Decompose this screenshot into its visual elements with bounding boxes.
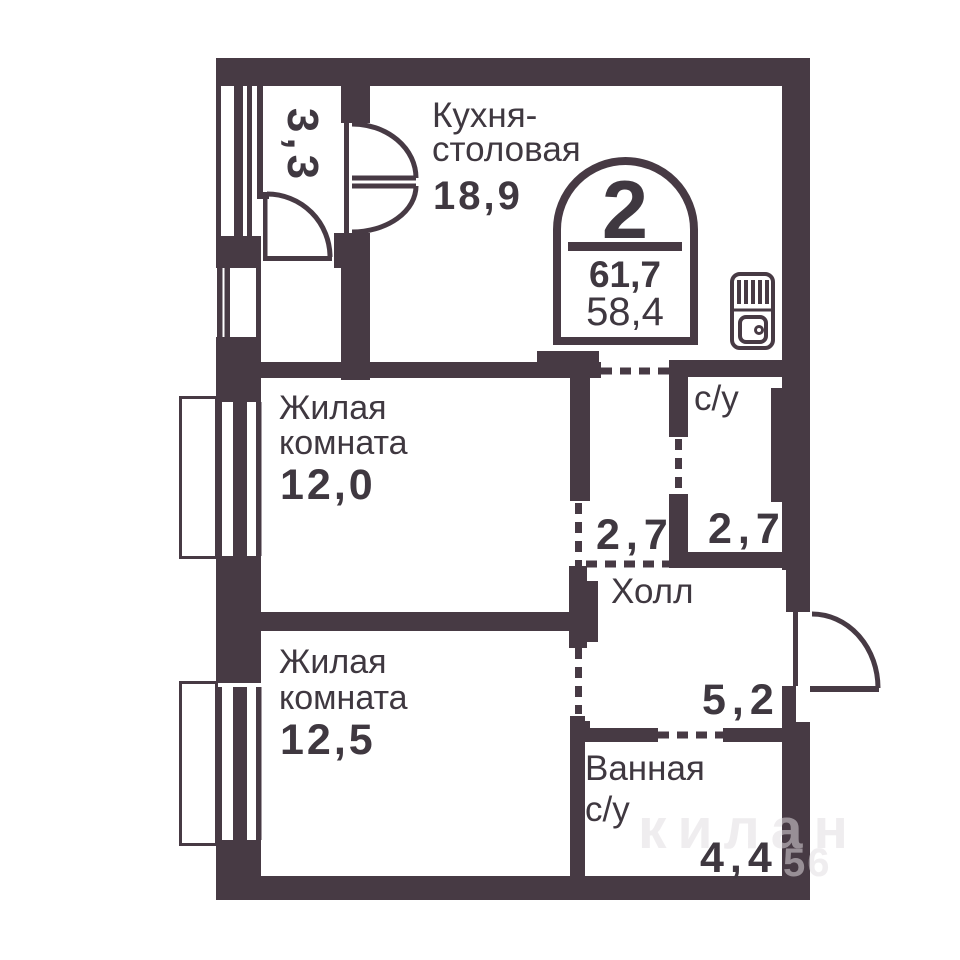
svg-text:комната: комната [279,679,408,717]
svg-text:12,0: 12,0 [280,461,376,509]
svg-text:56: 56 [783,841,832,885]
svg-text:с/у: с/у [694,379,739,418]
svg-text:Ванная: Ванная [585,749,705,788]
svg-text:комната: комната [279,424,408,462]
svg-text:2,7: 2,7 [708,505,786,553]
svg-text:Холл: Холл [611,572,694,611]
svg-text:Жилая: Жилая [279,389,387,427]
svg-text:18,9: 18,9 [433,174,523,218]
svg-text:12,5: 12,5 [280,716,376,764]
svg-text:61,7: 61,7 [589,254,661,295]
svg-text:5,2: 5,2 [702,676,780,724]
svg-text:Жилая: Жилая [279,643,387,681]
svg-text:58,4: 58,4 [586,290,664,334]
svg-text:2,7: 2,7 [596,511,674,559]
svg-text:с/у: с/у [585,790,630,829]
svg-text:столовая: столовая [432,130,581,169]
svg-text:3,3: 3,3 [278,108,327,184]
